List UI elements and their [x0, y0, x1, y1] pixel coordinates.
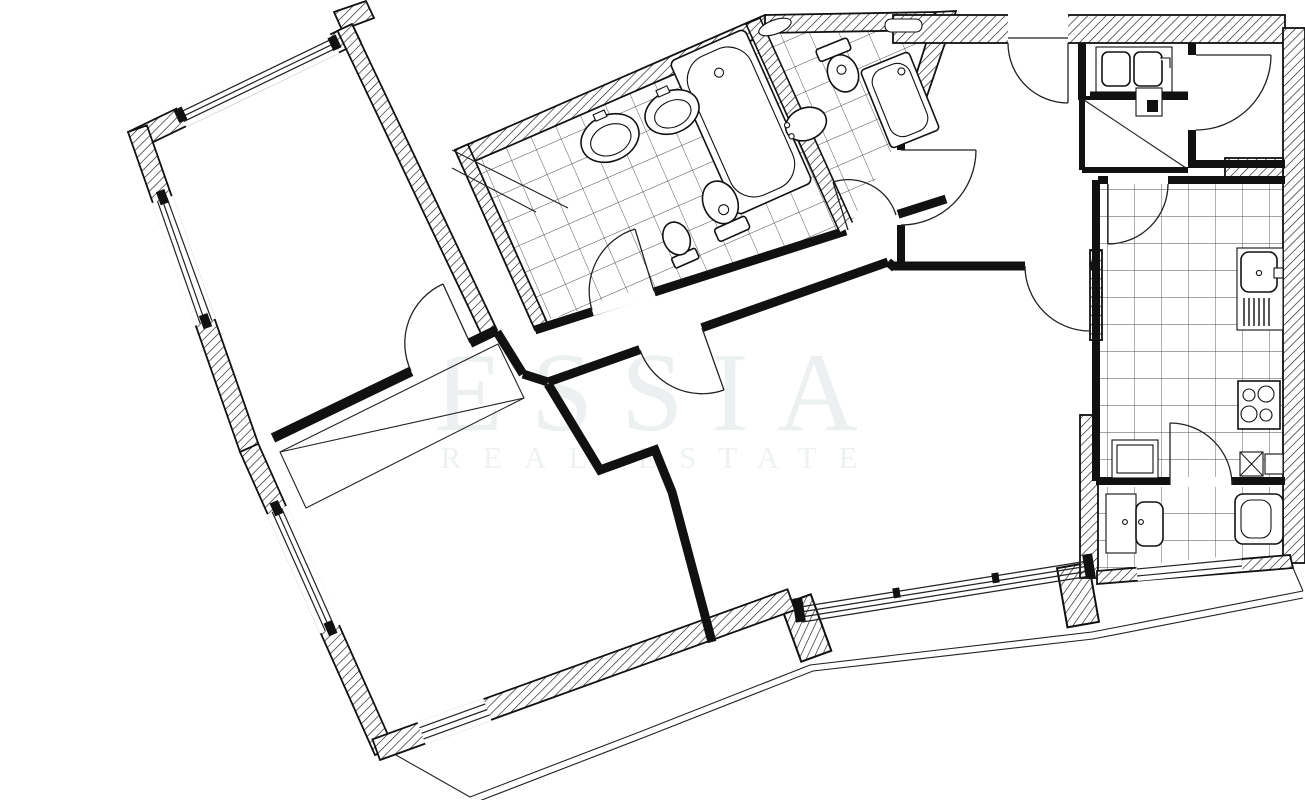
watermark-title: ESSIA — [434, 331, 885, 455]
floor-plan-page: ESSIA REAL ESTATE — [0, 0, 1305, 800]
double-sink-icon — [1096, 47, 1172, 92]
floor-plan-canvas: ESSIA REAL ESTATE — [0, 0, 1305, 800]
shelf-icon — [885, 19, 922, 32]
toilet-icon — [1235, 494, 1283, 544]
kitchen-counter — [1237, 248, 1283, 330]
hob-icon — [1238, 381, 1280, 429]
entrance-opening — [1008, 13, 1068, 45]
laundry-sink-icon — [1106, 494, 1163, 553]
vent-shaft-icon — [1136, 88, 1162, 116]
cabinet-icon — [1112, 440, 1158, 478]
appliance-box-icon — [1240, 452, 1283, 476]
